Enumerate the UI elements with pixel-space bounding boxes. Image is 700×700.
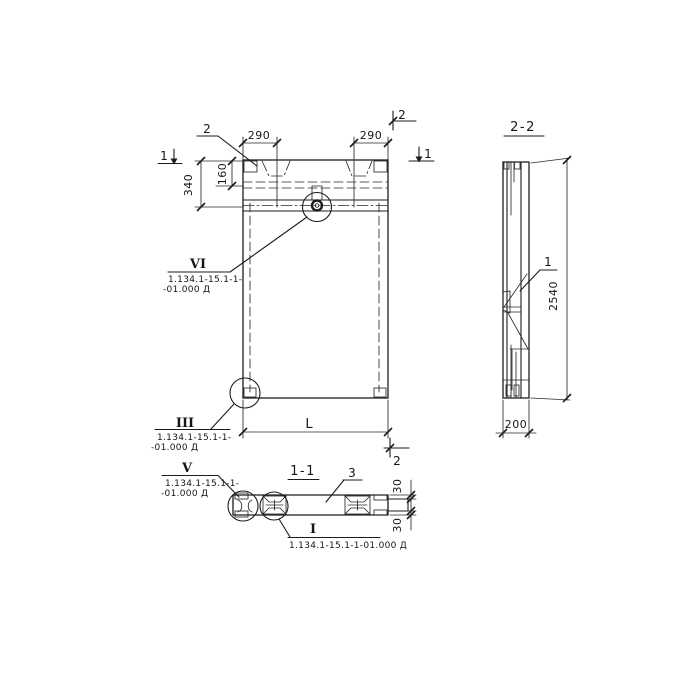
side-view: 2-2 1 (496, 120, 571, 438)
callout-v: V 1.134.1-15.1-1- -01.000 Д (161, 461, 239, 499)
callout-vi: VI 1.134.1-15.1-1- -01.000 Д (163, 217, 307, 295)
keyway-2 (345, 496, 370, 514)
dim-30-top: 30 (391, 479, 404, 494)
slab-callout: 3 (326, 466, 362, 502)
dim-160-group: 160 (216, 157, 243, 190)
dim-290-left-group: 290 (239, 129, 281, 207)
panel-outline (243, 160, 388, 398)
slab-label: 3 (348, 466, 356, 480)
embedded-plates (244, 161, 387, 397)
callout-v-label: V (181, 461, 193, 476)
section-marker-1-left: 1 (158, 149, 182, 165)
callout-vi-label: VI (189, 257, 206, 272)
callouts: VI 1.134.1-15.1-1- -01.000 Д III 1.134.1… (151, 217, 407, 551)
section-view: 1-1 3 (228, 464, 416, 533)
detail-circle-iii (230, 378, 260, 408)
rib-label: 1 (544, 255, 552, 269)
callout-iii-ref1: 1.134.1-15.1-1- (157, 433, 231, 443)
dim-290-right-group: 290 (350, 129, 392, 207)
marker-2-top-label: 2 (398, 108, 406, 122)
section-marker-2-top: 2 (389, 108, 416, 130)
dim-2540-group: 2540 (531, 156, 571, 402)
callout-iii-label: III (176, 416, 194, 431)
panel-working-drawing: 290 290 340 160 L (0, 0, 700, 700)
dim-290-right: 290 (360, 129, 383, 142)
marker-1-right-label: 1 (424, 147, 432, 161)
marker-2-bottom-label: 2 (393, 454, 401, 468)
dim-30-group: 30 30 (390, 479, 416, 533)
dim-2540: 2540 (547, 281, 560, 311)
callout-iii: III 1.134.1-15.1-1- -01.000 Д (151, 404, 234, 453)
marker-1-left-label: 1 (160, 149, 168, 163)
callout-iii-ref2: -01.000 Д (151, 443, 198, 453)
callout-v-ref1: 1.134.1-15.1-1- (165, 479, 239, 489)
lifting-anchor (312, 186, 322, 211)
embed-part-label: 2 (203, 122, 211, 136)
dim-200: 200 (505, 418, 528, 431)
section-marker-1-right: 1 (409, 147, 434, 163)
top-recesses (262, 161, 372, 176)
callout-vi-ref1: 1.134.1-15.1-1- (168, 275, 242, 285)
side-view-title: 2-2 (510, 120, 536, 135)
callout-i-label: I (310, 522, 316, 537)
section-marker-2-bottom: 2 (384, 438, 409, 468)
callout-v-ref2: -01.000 Д (161, 489, 208, 499)
dim-length-group: L (239, 400, 392, 438)
callout-i-ref: 1.134.1-15.1-1-01.000 Д (289, 541, 407, 551)
section-title: 1-1 (290, 464, 316, 479)
dim-340: 340 (182, 174, 195, 197)
end-keyway (235, 493, 252, 517)
keyway-1 (263, 496, 286, 514)
dim-160: 160 (216, 163, 229, 186)
right-end (374, 495, 408, 515)
dim-290-left: 290 (248, 129, 271, 142)
dim-200-group: 200 (496, 400, 536, 438)
callout-i: I 1.134.1-15.1-1-01.000 Д (279, 519, 407, 551)
dim-length: L (305, 417, 313, 432)
dim-30-bottom: 30 (391, 518, 404, 533)
callout-vi-ref2: -01.000 Д (163, 285, 210, 295)
